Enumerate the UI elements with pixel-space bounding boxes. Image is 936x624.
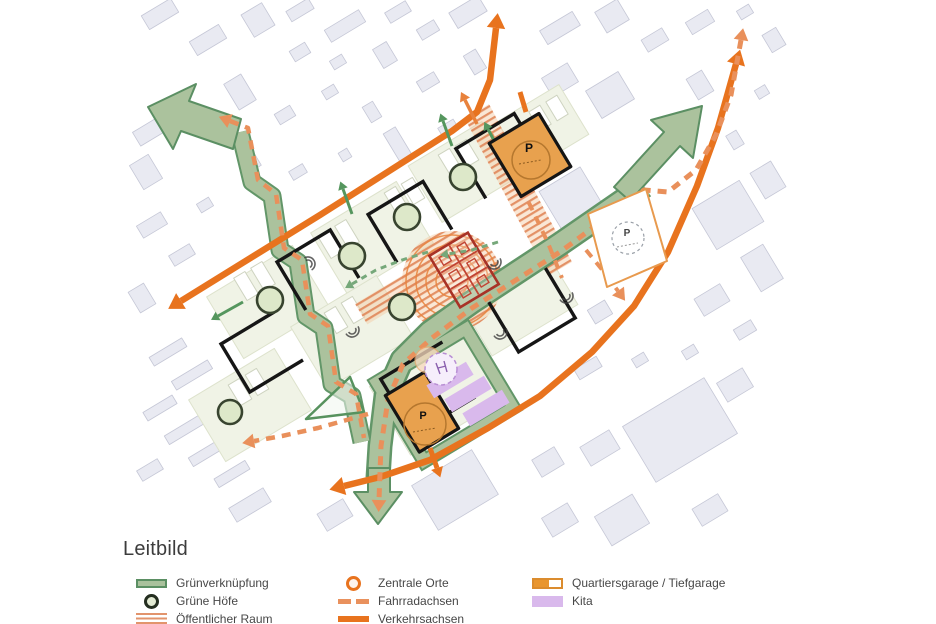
public-space-swatch: [136, 613, 167, 624]
legend-column-green: Grünverknüpfung Grüne Höfe Öffentlicher …: [136, 574, 273, 624]
legend-item-gruene-hoefe: Grüne Höfe: [136, 592, 273, 610]
svg-text:P: P: [525, 141, 533, 155]
legend-item-verkehrsachsen: Verkehrsachsen: [338, 610, 464, 624]
legend-column-axes: Zentrale Orte Fahrradachsen Verkehrsachs…: [338, 574, 464, 624]
legend-item-fahrradachsen: Fahrradachsen: [338, 592, 464, 610]
leitbild-plan-page: PPP Leitbild Grünverknüpfung Grüne Höfe …: [0, 0, 936, 624]
quarter-garage-swatch: [532, 578, 563, 589]
bike-axis-swatch: [338, 599, 369, 604]
traffic-axis-swatch: [338, 616, 369, 622]
legend-item-zentrale-orte: Zentrale Orte: [338, 574, 464, 592]
legend-item-gruenverknuepfung: Grünverknüpfung: [136, 574, 273, 592]
legend-item-quartiersgarage: Quartiersgarage / Tiefgarage: [532, 574, 725, 592]
legend-item-kita: Kita: [532, 592, 725, 610]
legend-item-oeffentlicher-raum: Öffentlicher Raum: [136, 610, 273, 624]
svg-text:P: P: [624, 228, 631, 239]
legend-column-buildings: Quartiersgarage / Tiefgarage Kita: [532, 574, 725, 610]
kita-swatch: [532, 596, 563, 607]
green-courtyard-swatch: [136, 594, 167, 609]
central-place-swatch: [338, 576, 369, 591]
svg-text:P: P: [419, 410, 426, 422]
green-connection-swatch: [136, 579, 167, 588]
page-title: Leitbild: [123, 538, 188, 561]
leitbild-map: PPP: [0, 0, 936, 624]
